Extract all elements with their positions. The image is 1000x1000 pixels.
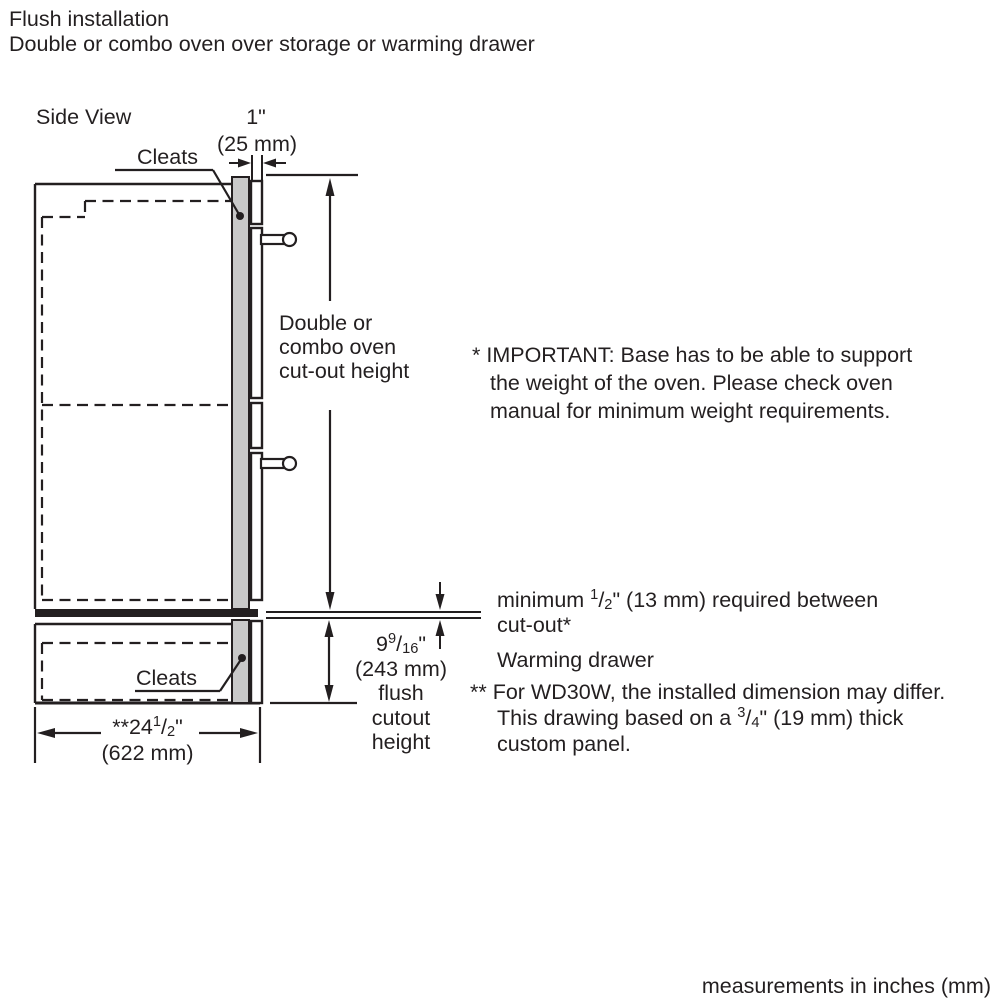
page-subtitle: Double or combo oven over storage or war… bbox=[9, 31, 535, 57]
warming-drawer-label: Warming drawer bbox=[497, 647, 654, 673]
custom-panel-upper bbox=[232, 177, 249, 609]
min-gap-note: minimum 1/2" (13 mm) required between cu… bbox=[497, 588, 878, 638]
oven-handle-bottom bbox=[261, 457, 296, 470]
width-dim-label: **241/2" (622 mm) bbox=[85, 714, 210, 766]
units-footnote: measurements in inches (mm) bbox=[702, 973, 991, 999]
flush-cutout-dim-label: 99/16" (243 mm) flush cutout height bbox=[331, 632, 471, 755]
page-title: Flush installation bbox=[9, 6, 169, 32]
oven-handle-top bbox=[261, 233, 296, 246]
side-view-label: Side View bbox=[36, 104, 131, 130]
dim-panel-gap-mm: (25 mm) bbox=[207, 131, 307, 157]
important-note: * IMPORTANT: Base has to be able to supp… bbox=[472, 341, 912, 425]
wd30w-note: ** For WD30W, the installed dimension ma… bbox=[470, 679, 945, 757]
drawer-front-panel bbox=[251, 621, 262, 703]
cleats-label-bottom: Cleats bbox=[136, 665, 197, 691]
cleats-leader-top bbox=[115, 170, 244, 220]
oven-cutout-dashed-outline bbox=[42, 201, 232, 600]
cleats-label-top: Cleats bbox=[137, 144, 198, 170]
cutout-height-label: Double or combo oven cut-out height bbox=[279, 311, 409, 383]
cabinet-outline bbox=[35, 184, 232, 609]
dim-panel-gap-inches: 1" bbox=[236, 104, 276, 130]
oven-base-bar bbox=[35, 609, 258, 617]
installation-diagram-page: Flush installation Double or combo oven … bbox=[0, 0, 1000, 1000]
